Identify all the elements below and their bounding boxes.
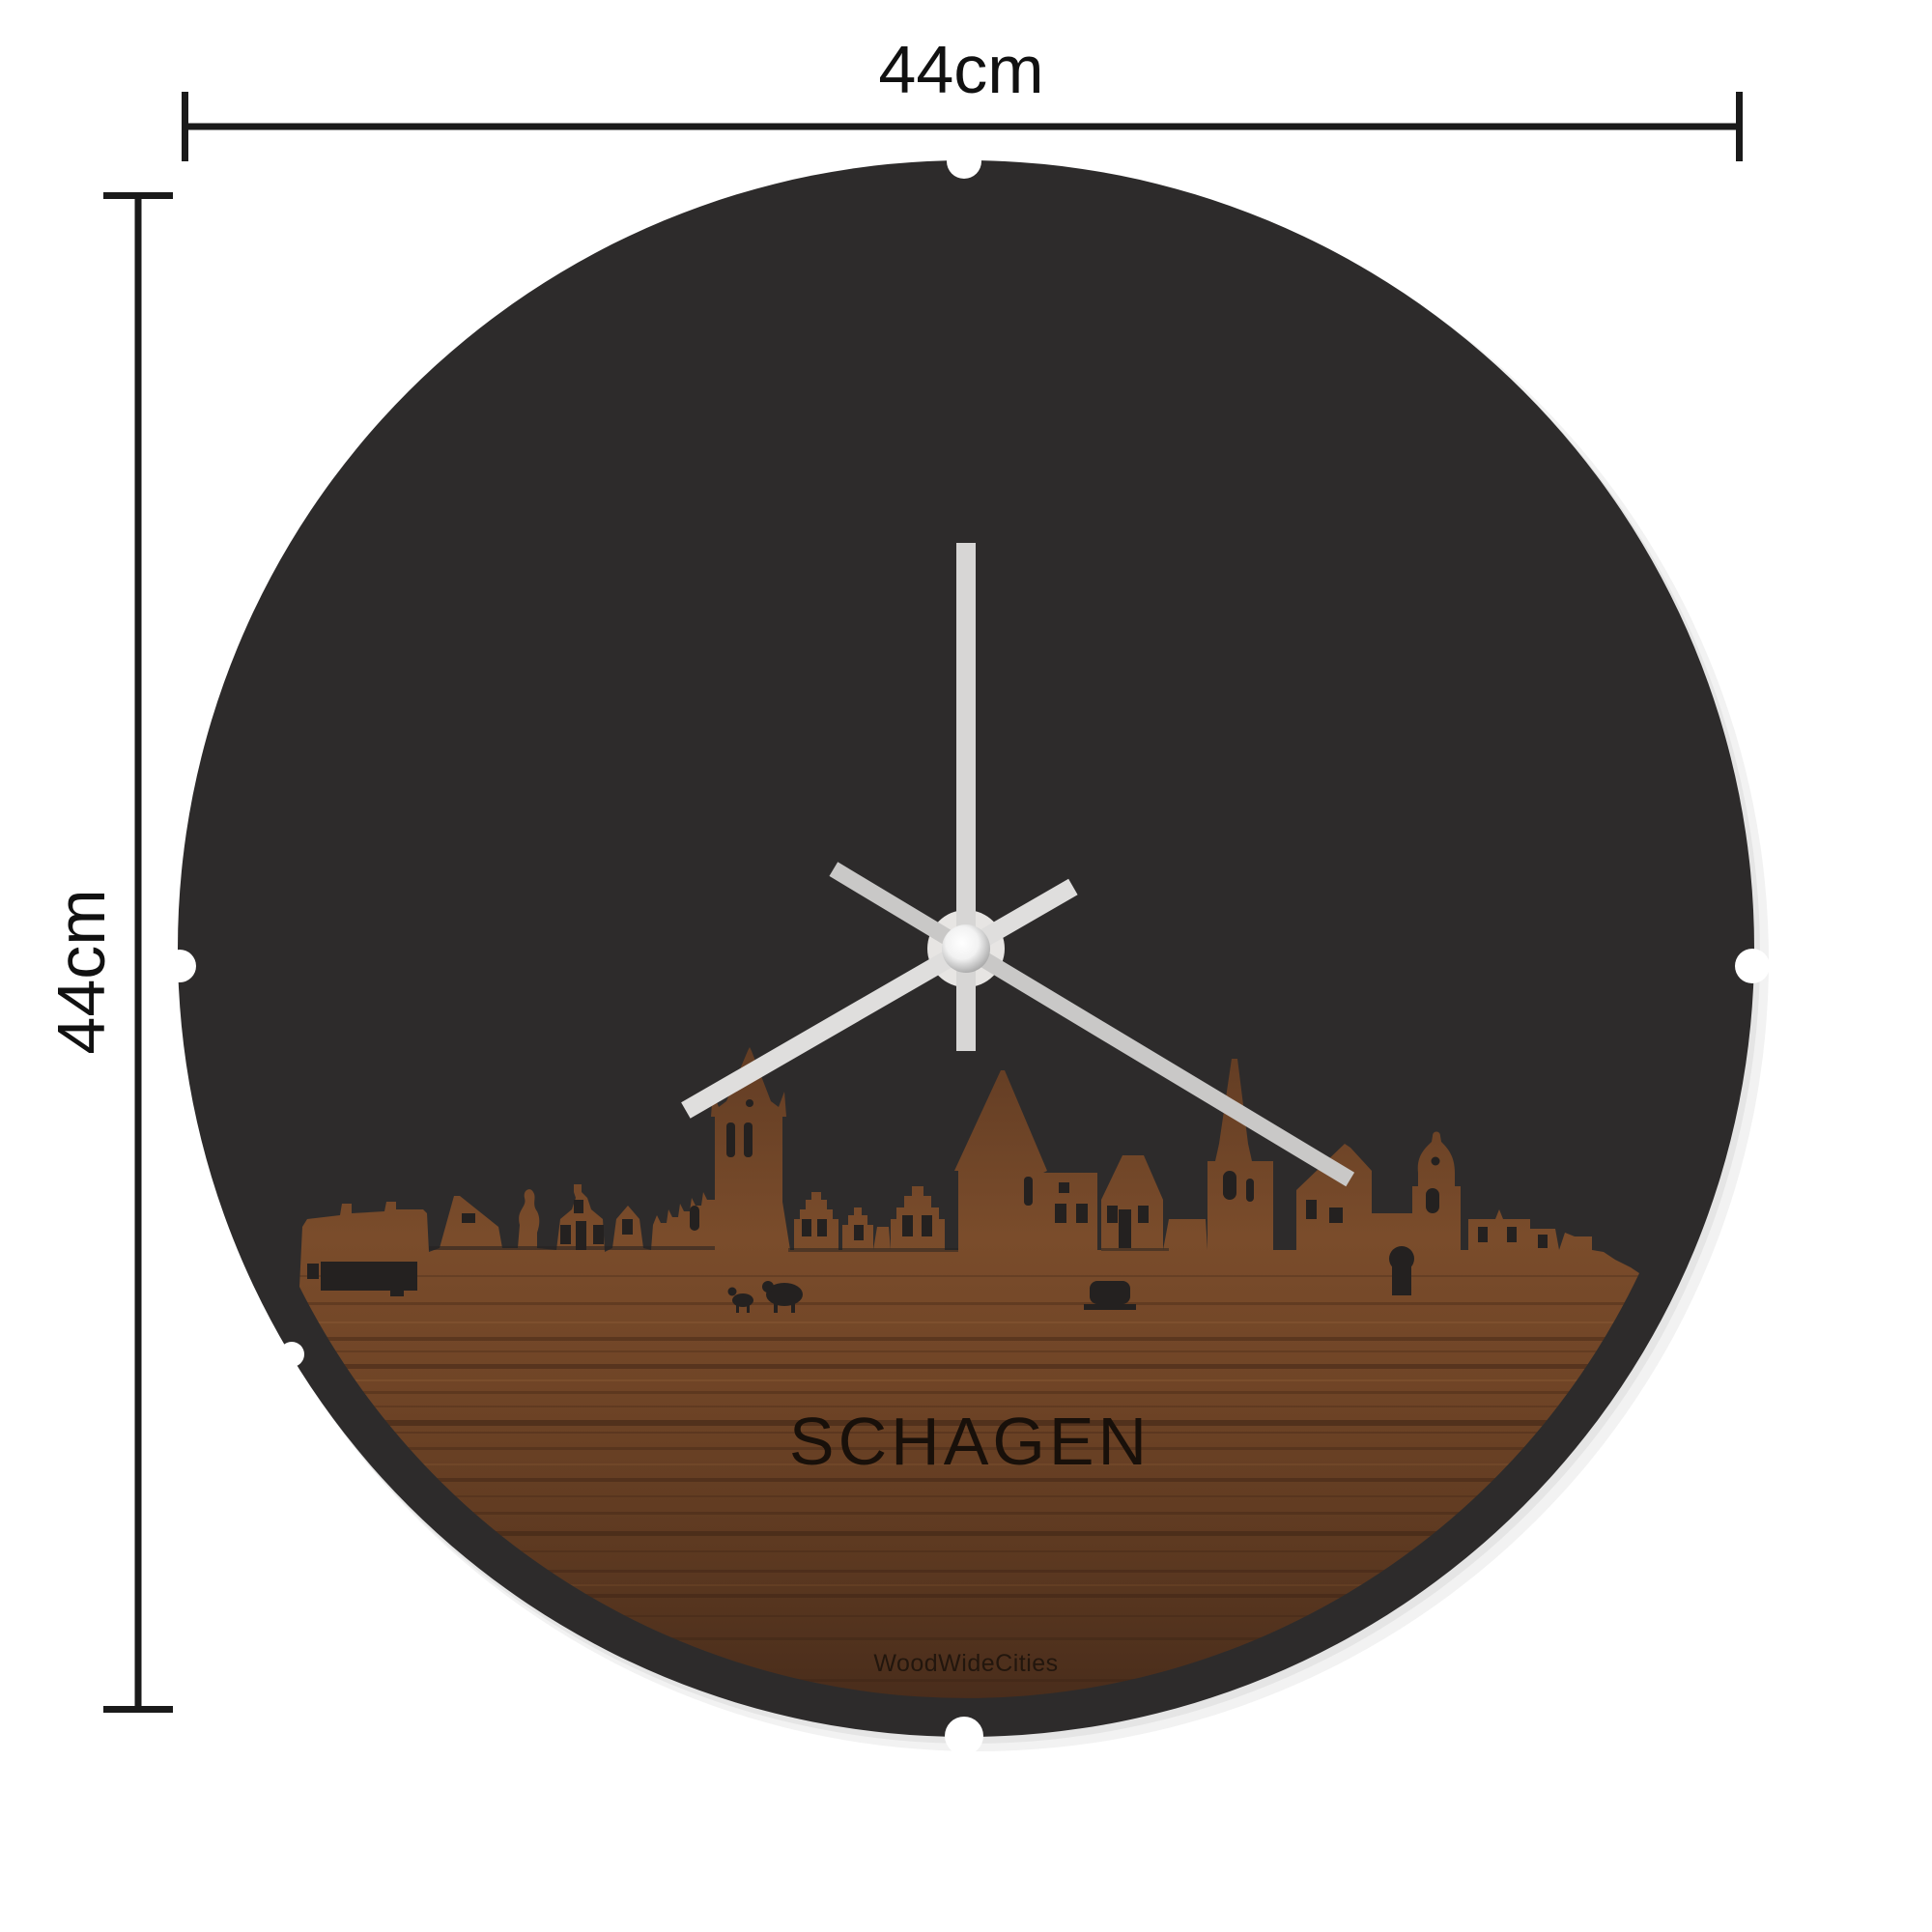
mounting-notch-left	[163, 950, 196, 982]
width-dimension-label: 44cm	[878, 32, 1043, 107]
mounting-notch-bottom	[945, 1717, 983, 1755]
width-dimension-tick-right	[1736, 92, 1743, 161]
height-dimension-label: 44cm	[43, 889, 119, 1054]
watermark-label: WoodWideCities	[873, 1650, 1058, 1677]
height-dimension: 44cm	[43, 192, 173, 1713]
cannon-silhouette	[1090, 1281, 1130, 1304]
height-dimension-line	[135, 195, 142, 1712]
goat-silhouette	[732, 1293, 753, 1307]
mounting-notch-top	[947, 144, 981, 179]
width-dimension-line	[185, 124, 1739, 130]
product-dimension-diagram: SCHAGEN WoodWideCities 44cm 44cm	[0, 0, 1932, 1932]
height-dimension-tick-bottom	[103, 1706, 173, 1713]
height-dimension-tick-top	[103, 192, 173, 199]
width-dimension: 44cm	[182, 32, 1743, 161]
mounting-notch-lower-left	[279, 1342, 304, 1367]
width-dimension-tick-left	[182, 92, 188, 161]
city-name-label: SCHAGEN	[789, 1404, 1151, 1479]
diagram-canvas: SCHAGEN WoodWideCities 44cm 44cm	[0, 0, 1932, 1932]
hub-cap	[942, 924, 990, 973]
hand-minute	[956, 543, 976, 1051]
mounting-notch-right	[1735, 949, 1770, 983]
